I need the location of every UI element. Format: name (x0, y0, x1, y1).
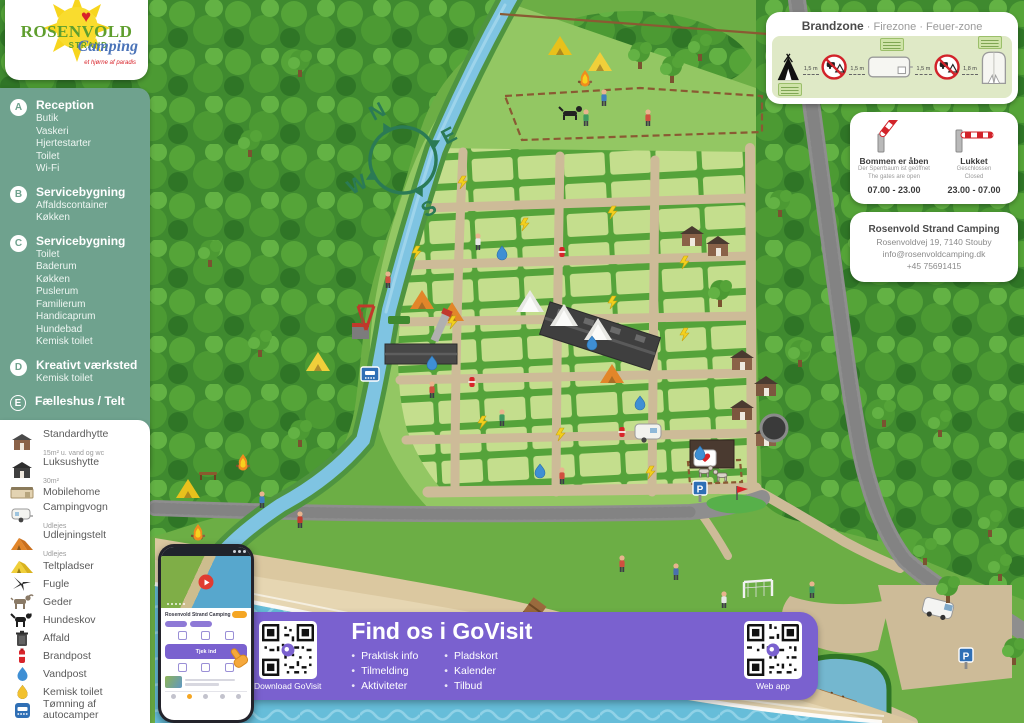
app-title: Rosenvold Strand Camping (165, 612, 231, 618)
tent-icon (10, 556, 34, 576)
app-listing (165, 676, 247, 688)
govisit-text: Find os i GoVisit Praktisk info Tilmeldi… (335, 618, 730, 694)
app-body: Rosenvold Strand Camping Tjek ind (161, 608, 251, 720)
qr-download-block: Download GoVisit (254, 621, 321, 691)
barrier-closed-icon (952, 120, 996, 154)
chemical-toilet-icon (10, 682, 34, 702)
legend-row-affald: Affald (10, 629, 144, 647)
qr-code-webapp (744, 621, 802, 679)
follow-button (232, 611, 247, 618)
autocamper-icon (10, 700, 34, 720)
distance-segment: 1,8 m (962, 74, 978, 75)
caravan-icon (10, 505, 34, 525)
legend-row-autocamper: Tømning af autocamper (10, 701, 144, 719)
legend-item-servicebygning-b: B Servicebygning Affaldscontainer Køkken (10, 185, 142, 225)
contact-email: info@rosenvoldcamping.dk (850, 249, 1018, 259)
legend-row-hundeskov: Hundeskov (10, 611, 144, 629)
hydrant-icon (10, 646, 34, 666)
marker-e: E (10, 395, 26, 411)
legend-row-luksushytte: Luksushytte30m² (10, 456, 144, 484)
cabin-lux-icon (10, 460, 34, 480)
legend-row-teltpladser: Teltpladser (10, 557, 144, 575)
qr-webapp-block: Web app (744, 621, 802, 691)
brandzone-diagram: 1,5 m 1,5 m 1,5 m 1,8 m (772, 36, 1012, 98)
mobilehome-icon (10, 483, 34, 503)
trampoline (761, 415, 787, 441)
legend-row-fugle: Fugle (10, 575, 144, 593)
autocamper-sign (361, 367, 379, 381)
app-tags (165, 621, 247, 627)
qr-download-label: Download GoVisit (254, 681, 321, 691)
legend-item-servicebygning-c: C Servicebygning Toilet Baderum Køkken P… (10, 234, 142, 349)
qr-code-download (259, 621, 317, 679)
logo-camping: Camping (78, 38, 138, 56)
pointer-hand-icon (227, 645, 251, 671)
app-header-photo (161, 556, 251, 608)
app-quick-icons (165, 630, 247, 641)
listing-thumbnail (165, 676, 182, 688)
app-bottom-nav (165, 691, 247, 699)
govisit-title: Find os i GoVisit (351, 618, 730, 645)
govisit-bullets-left: Praktisk info Tilmelding Aktiviteter (351, 649, 418, 694)
legend-row-geder: Geder (10, 593, 144, 611)
legend-title: Reception (36, 98, 94, 113)
govisit-bullets-right: Pladskort Kalender Tilbud (444, 649, 497, 694)
brandzone-card: Brandzone · Firezone · Feuer-zone 1,5 m … (766, 12, 1018, 104)
waterdrop-icon (10, 664, 34, 684)
svg-text:P: P (697, 485, 704, 496)
note-badge (978, 36, 1002, 49)
phone-mockup: Rosenvold Strand Camping Tjek ind (158, 544, 254, 723)
marker-c: C (10, 235, 27, 252)
heart-icon: ♥ (81, 8, 91, 25)
barrier-open-icon (872, 120, 916, 154)
open-hours: 07.00 - 23.00 (867, 185, 920, 195)
tent-silhouette-icon (776, 49, 801, 85)
awning-outline-icon (980, 45, 1008, 89)
legend-item-faelleshus: E Fælleshus / Telt (10, 394, 142, 411)
logo-tagline: et hjørne af paradis (84, 60, 136, 66)
logo-card: ROSENVOLD ♥ STRAND Camping et hjørne af … (5, 0, 148, 80)
dog-icon (10, 610, 34, 630)
distance-segment: 1,5 m (849, 74, 865, 75)
svg-text:P: P (963, 652, 970, 663)
contact-phone: +45 75691415 (850, 261, 1018, 271)
caravan-outline-icon (867, 51, 913, 83)
gate-closed-column: Lukket Geschlossen Closed 23.00 - 07.00 (934, 120, 1014, 196)
contact-name: Rosenvold Strand Camping (850, 224, 1018, 235)
bird-icon (10, 574, 34, 594)
legend-row-udlejningstelt: UdlejningsteltUdlejes (10, 529, 144, 557)
gate-hours-card: Bommen er åben Der Sperrbaum ist geöffne… (850, 112, 1018, 204)
legend-item-reception: A Reception Butik Vaskeri Hjertestarter … (10, 98, 142, 176)
marker-b: B (10, 186, 27, 203)
gate-open-column: Bommen er åben Der Sperrbaum ist geöffne… (854, 120, 934, 196)
trash-icon (10, 628, 34, 648)
legend-row-brandpost: Brandpost (10, 647, 144, 665)
carousel-dots (167, 603, 185, 605)
no-camping-sign-icon (821, 51, 847, 83)
legend-item-kreativt: D Kreativt værksted Kemisk toilet (10, 358, 142, 386)
cabin-standard-icon (10, 432, 34, 452)
no-camping-sign-icon (934, 51, 960, 83)
legend-row-vandpost: Vandpost (10, 665, 144, 683)
marker-a: A (10, 99, 27, 116)
qr-webapp-label: Web app (756, 681, 790, 691)
legend-panel-buildings: A Reception Butik Vaskeri Hjertestarter … (0, 88, 150, 475)
note-badge (778, 83, 802, 96)
checkin-button: Tjek ind (165, 644, 247, 659)
marker-d: D (10, 359, 27, 376)
distance-segment: 1,5 m (915, 74, 931, 75)
contact-card: Rosenvold Strand Camping Rosenvoldvej 19… (850, 212, 1018, 282)
distance-segment: 1,5 m (803, 74, 819, 75)
brandzone-title: Brandzone · Firezone · Feuer-zone (772, 19, 1012, 33)
play-icon (199, 575, 214, 590)
legend-panel-symbols: Standardhytte15m² u. vand og wc Luksushy… (0, 420, 150, 723)
phone-status-bar (161, 547, 251, 556)
note-badge (880, 38, 904, 51)
rental-tent-icon (10, 533, 34, 553)
closed-hours: 23.00 - 07.00 (947, 185, 1000, 195)
govisit-banner: Download GoVisit Find os i GoVisit Prakt… (238, 612, 818, 700)
phone-screen: Rosenvold Strand Camping Tjek ind (161, 547, 251, 720)
contact-address: Rosenvoldvej 19, 7140 Stouby (850, 237, 1018, 247)
goat-icon (10, 592, 34, 612)
